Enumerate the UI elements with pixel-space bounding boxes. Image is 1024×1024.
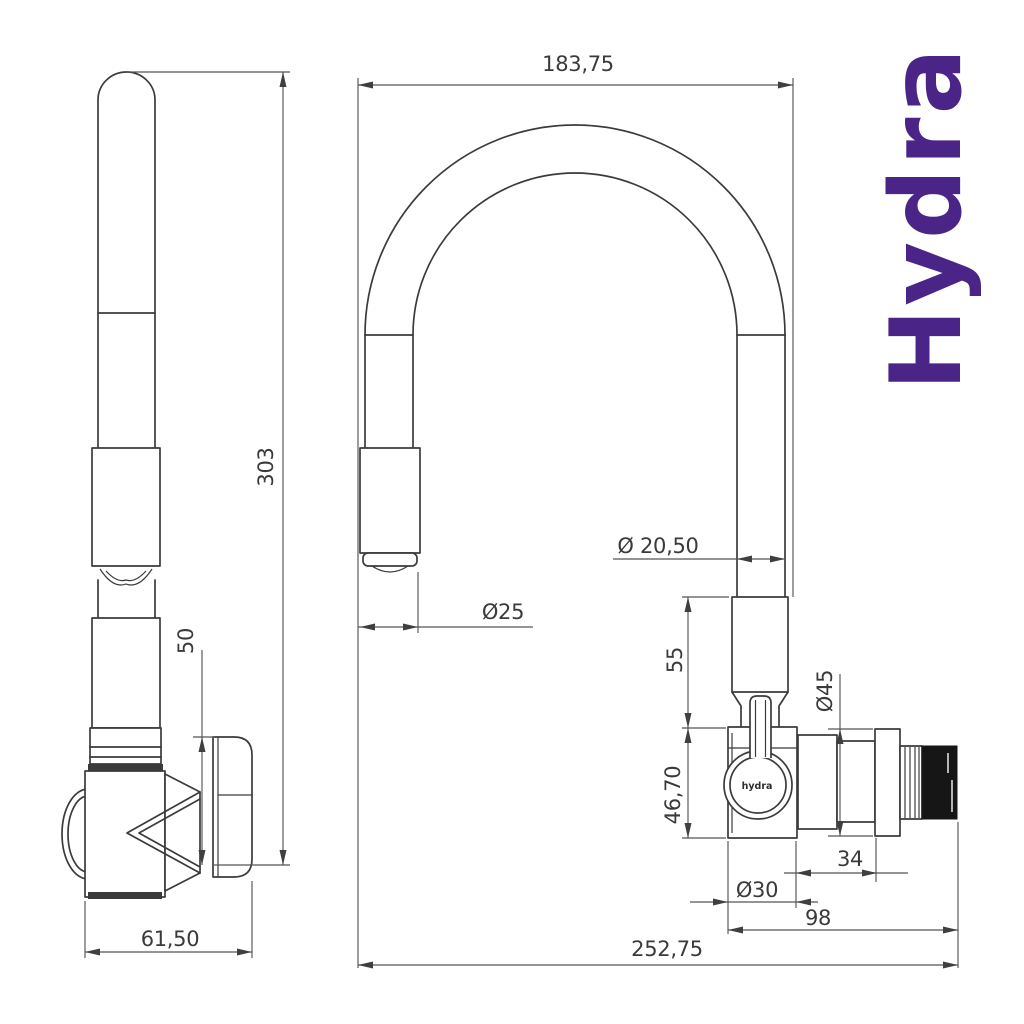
side-body-dark-base [88,892,162,899]
dim-flange-diameter: Ø45 [813,670,837,712]
technical-drawing-page: 303 50 61,50 [0,0,1024,1024]
upper-body-block [732,597,788,692]
dim-connector-length: 34 [837,847,863,871]
side-collar [90,728,161,764]
dim-total-height: 303 [254,447,278,486]
side-riser-body [92,618,160,728]
dim-valve-body-height: 46,70 [661,766,685,825]
dim-upper-body-height: 55 [663,647,687,673]
outlet-pipe [837,741,875,822]
dim-total-reach: 252,75 [631,937,703,961]
dim-outlet-length: 98 [805,906,831,930]
dim-spray-head-diameter: Ø25 [482,600,524,624]
outlet-collar [798,735,837,829]
dim-base-width: 61,50 [141,927,200,951]
hydra-logo: Hydra [870,45,984,391]
side-outlet-stub [165,774,200,891]
dim-hose-diameter: Ø 20,50 [617,534,698,558]
dim-valve-body-diameter: Ø30 [736,878,778,902]
dim-body-section-height: 50 [174,628,198,654]
dim-spout-reach: 183,75 [542,52,614,76]
side-collar-dark-band [88,764,163,771]
side-main-body [85,771,165,897]
faucet-technical-drawing: 303 50 61,50 [0,0,1024,1024]
knob-brand-label: hydra [742,781,773,792]
spray-head-lip [363,553,417,566]
handle-lever [750,696,771,758]
outlet-flange [875,729,900,836]
side-mount-block [213,737,252,877]
side-spray-head [92,448,160,566]
spray-head [360,448,420,553]
